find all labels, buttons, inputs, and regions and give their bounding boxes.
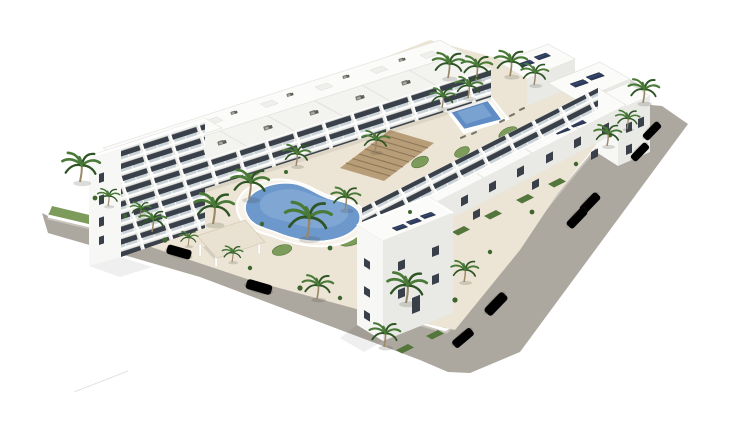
render-canvas: Aerial 3D rendering of a white Mediterra…	[0, 0, 756, 443]
stray-artifact-line	[74, 371, 128, 392]
apartment-complex-render	[0, 0, 756, 443]
